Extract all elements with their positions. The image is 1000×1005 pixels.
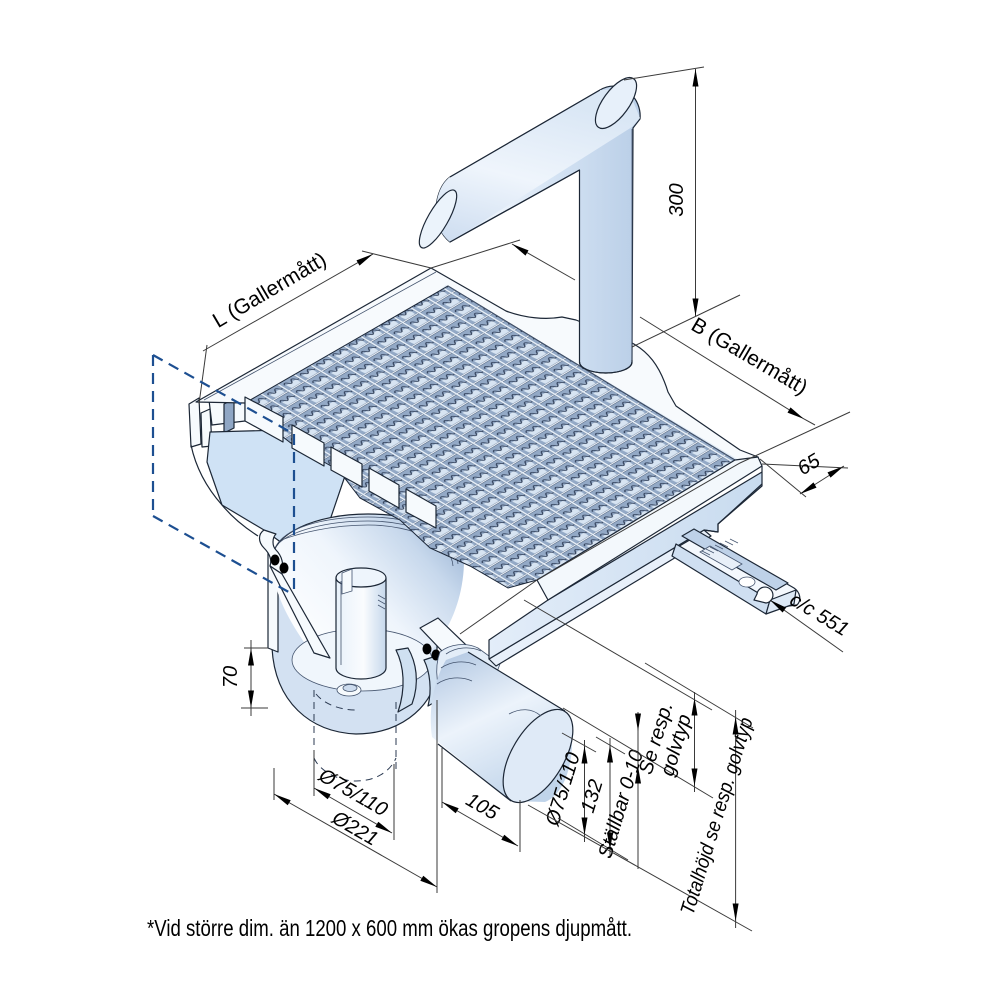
svg-text:70: 70 [220, 666, 242, 688]
svg-text:*Vid större dim. än 1200 x 600: *Vid större dim. än 1200 x 600 mm ökas g… [147, 915, 632, 941]
svg-text:300: 300 [666, 183, 688, 216]
